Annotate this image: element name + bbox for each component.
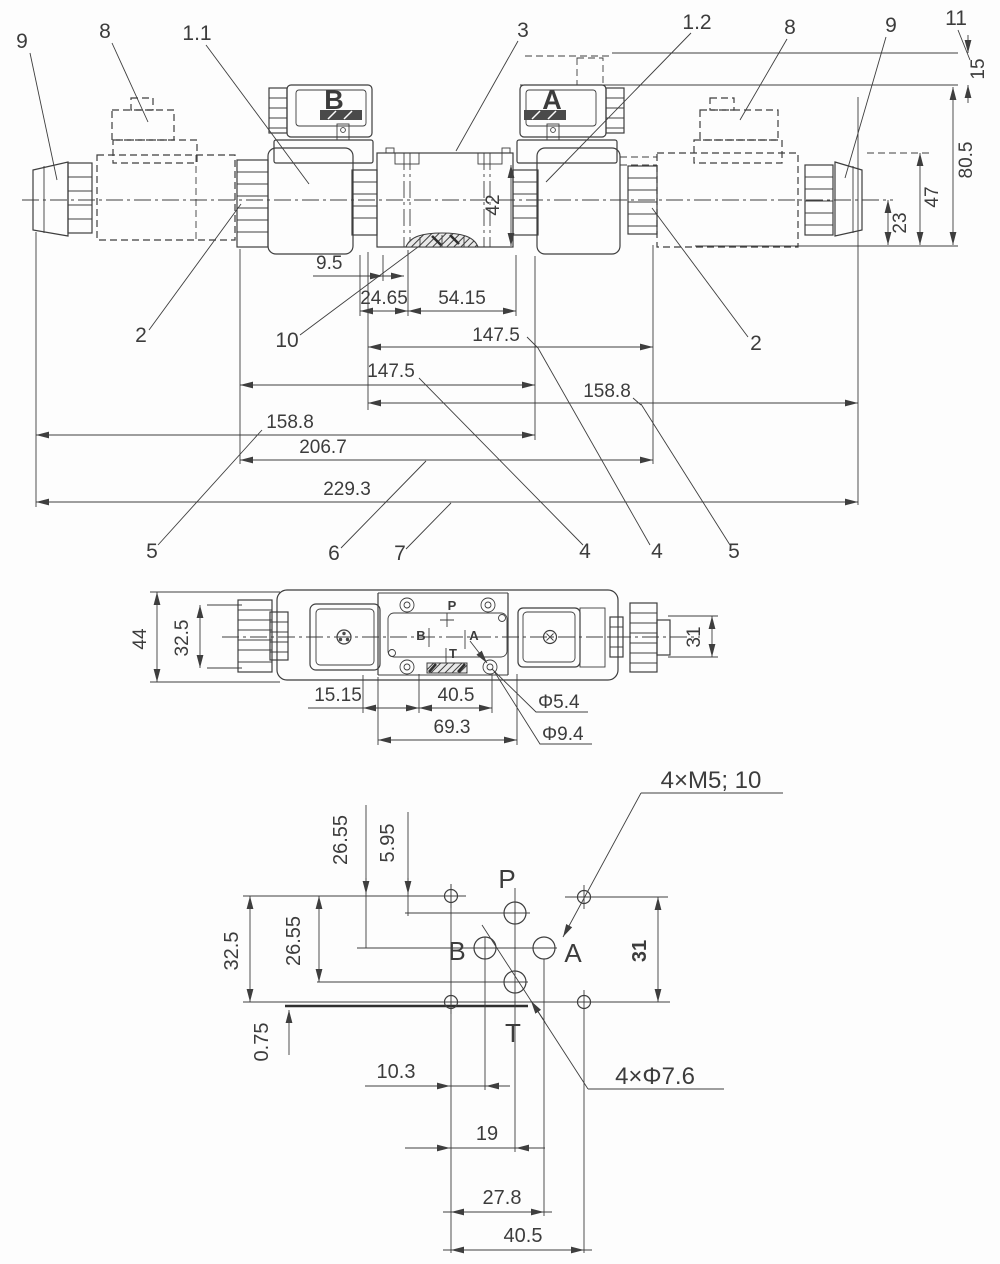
dim-42: 42: [483, 194, 504, 215]
bottom-view: P B A T 4×M5; 10 4×Φ7.6 26.55 5.95 32.5 …: [221, 767, 783, 1253]
dim-0-75: 0.75: [251, 1023, 273, 1062]
balloon-3: 3: [517, 19, 529, 42]
dim-10-3: 10.3: [377, 1061, 416, 1083]
balloon-5-left: 5: [146, 540, 158, 563]
dim-31-top: 31: [684, 626, 705, 647]
balloon-5-right: 5: [728, 540, 740, 563]
phantom-left-connector: [112, 98, 197, 163]
ring-nut-left: [352, 170, 377, 235]
bottom-port-a-label: A: [564, 938, 582, 968]
dim-158-8-left: 158.8: [266, 412, 314, 433]
dim-23: 23: [890, 212, 911, 233]
dim-80-5: 80.5: [956, 142, 977, 179]
balloon-4-left: 4: [579, 540, 591, 563]
balloon-6: 6: [328, 542, 340, 565]
phantom-left-solenoid: [97, 155, 235, 240]
dim-15: 15: [968, 58, 989, 79]
bottom-port-p-label: P: [498, 864, 515, 894]
dim-147-5-upper: 147.5: [472, 325, 520, 346]
balloon-10: 10: [275, 329, 298, 352]
dim-158-8-right: 158.8: [583, 381, 631, 402]
dim-24-65: 24.65: [360, 288, 408, 309]
bottom-vertical-dimensions: 26.55 5.95 32.5 26.55 31 0.75: [221, 805, 658, 1061]
balloon-8-left: 8: [99, 20, 111, 43]
top-coil-right: [518, 608, 605, 667]
dim-40-5-top: 40.5: [438, 685, 475, 706]
balloon-7: 7: [394, 542, 406, 565]
nameplate: [406, 233, 478, 247]
dim-54-15: 54.15: [438, 288, 486, 309]
dim-27-8: 27.8: [483, 1187, 522, 1209]
top-nameplate: [427, 663, 467, 673]
top-interface-block: P B A T: [378, 593, 508, 675]
balloon-4-right: 4: [651, 540, 663, 563]
callout-phi-7-6: 4×Φ7.6: [615, 1063, 695, 1090]
dim-206-7: 206.7: [299, 437, 347, 458]
dim-phi-5-4: Φ5.4: [538, 692, 580, 713]
top-port-a-label: A: [469, 628, 479, 643]
balloon-9-left: 9: [16, 30, 28, 53]
dim-phi-9-4: Φ9.4: [542, 724, 584, 745]
balloon-11: 11: [945, 7, 967, 30]
top-view: P B A T: [130, 590, 718, 745]
balloon-2-right: 2: [750, 332, 762, 355]
left-knurled-nut: [68, 163, 92, 233]
front-horizontal-dimensions: 9.5 24.65 54.15 147.5 147.5 158.8 158.8: [36, 232, 858, 507]
technical-drawing-canvas: B: [0, 0, 1000, 1264]
balloon-2-left: 2: [135, 324, 147, 347]
top-right-knurl: [610, 603, 670, 672]
dim-9-5: 9.5: [316, 253, 342, 274]
phantom-position-lines: [520, 53, 958, 505]
balloon-1-2: 1.2: [682, 11, 711, 34]
top-left-knurl: [238, 600, 288, 672]
connector-a: A: [517, 85, 624, 163]
top-port-b-label: B: [416, 628, 425, 643]
top-port-p-label: P: [448, 598, 457, 613]
dim-32-5-bottom: 32.5: [221, 932, 243, 971]
dim-47: 47: [922, 186, 943, 207]
dim-40-5-bottom: 40.5: [504, 1225, 543, 1247]
ring-nut-right: [513, 170, 538, 235]
dim-44: 44: [130, 628, 151, 650]
dim-69-3: 69.3: [434, 717, 471, 738]
balloon-9-right: 9: [885, 14, 897, 37]
dim-15-15: 15.15: [314, 685, 362, 706]
dim-31-bottom: 31: [629, 940, 651, 962]
left-end-cap: [33, 162, 68, 236]
dim-26-55-inner: 26.55: [283, 916, 305, 966]
front-balloon-labels: 9 8 1.1 3 1.2 8 9 11 2 2 10 5 6: [16, 7, 970, 565]
dim-19: 19: [476, 1123, 498, 1145]
solenoid-tube-right: [537, 148, 620, 254]
front-view: B: [16, 7, 989, 565]
solenoid-tube-left: [268, 148, 353, 254]
bottom-port-t-label: T: [505, 1018, 521, 1048]
balloon-1-1: 1.1: [182, 22, 211, 45]
callout-m5: 4×M5; 10: [661, 767, 762, 794]
bottom-port-b-label: B: [448, 936, 465, 966]
dim-147-5-lower: 147.5: [367, 361, 415, 382]
bottom-horizontal-dimensions: 10.3 19 27.8 40.5: [365, 1061, 592, 1250]
valve-dimension-drawing: B: [0, 0, 1000, 1264]
top-port-t-label: T: [449, 646, 457, 661]
left-coil-nut: [237, 160, 268, 247]
dim-32-5-top: 32.5: [172, 620, 193, 657]
bottom-callouts: 4×M5; 10 4×Φ7.6: [482, 767, 783, 1090]
dim-26-55-upper: 26.55: [330, 815, 352, 865]
balloon-8-right: 8: [784, 16, 796, 39]
dim-5-95: 5.95: [377, 824, 399, 863]
dim-229-3: 229.3: [323, 479, 371, 500]
